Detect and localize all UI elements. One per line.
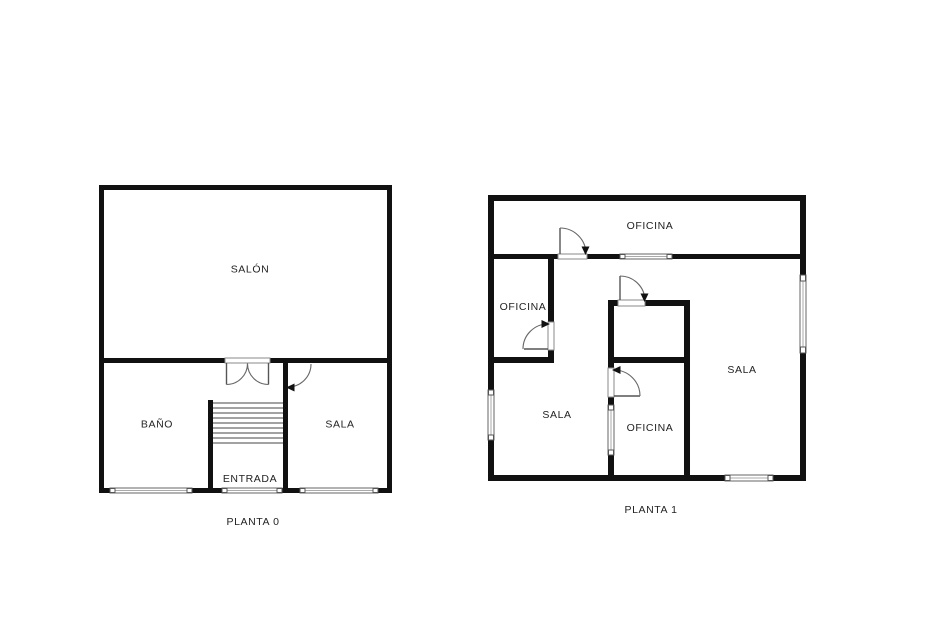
room-label-entrada: ENTRADA [223, 473, 277, 485]
double-door-symbol [225, 358, 270, 385]
door-swing-arc [288, 364, 311, 387]
stairs [213, 403, 283, 443]
room-label-salon: SALÓN [231, 263, 270, 276]
wall-left-upper [488, 195, 494, 390]
door-opening [225, 358, 270, 363]
wall-stair-left [208, 400, 213, 488]
wall-divider-right [270, 358, 392, 363]
door-swing-arc-left [227, 364, 248, 385]
window-cap [667, 255, 672, 259]
floorplan-canvas: SALÓN BAÑO SALA ENTRADA PLANTA 0 [0, 0, 937, 642]
door-swing-arc [614, 370, 640, 396]
wall-right-upper [800, 195, 806, 275]
door-swing-arc-right [248, 364, 269, 385]
door-swing-arc [620, 276, 645, 301]
wall-right [387, 185, 392, 493]
wall-segment [608, 357, 690, 363]
room-label-oficina-left: OFICINA [500, 301, 547, 313]
window-cap [373, 489, 378, 493]
wall-divider-left [99, 358, 225, 363]
room-label-oficina-middle: OFICINA [627, 422, 674, 434]
window-cap [110, 489, 115, 493]
door-top-corridor [558, 228, 590, 259]
window-cap [768, 476, 773, 481]
outer-walls [99, 185, 392, 493]
door-opening [608, 368, 614, 397]
window-bottom-wall [725, 475, 773, 481]
door-swing-arc [523, 324, 548, 349]
door-oficina-middle [608, 366, 640, 397]
wall-segment [608, 397, 614, 405]
wall-segment [608, 455, 614, 481]
door-opening [618, 300, 645, 306]
window-top-corridor [620, 254, 672, 259]
room-label-sala-left: SALA [542, 409, 571, 421]
center-room-walls [608, 300, 690, 481]
window-cap [725, 476, 730, 481]
interior-walls [208, 363, 288, 488]
room-label-bano: BAÑO [141, 418, 173, 431]
window-cap [620, 255, 625, 259]
room-label-oficina-top: OFICINA [627, 220, 674, 232]
plan-caption-planta0: PLANTA 0 [226, 516, 279, 528]
wall-top [99, 185, 392, 190]
window-cap [489, 435, 494, 440]
window-bano [110, 488, 192, 493]
window-cap [277, 489, 282, 493]
wall-segment [672, 254, 800, 259]
window-oficina-middle-wall [608, 405, 614, 455]
door-opening [548, 322, 554, 350]
wall-segment [608, 300, 614, 363]
wall-right-lower [800, 353, 806, 481]
floorplan-page: { "plans": { "planta0": { "caption": "PL… [0, 0, 937, 642]
window-cap [609, 450, 614, 455]
wall-segment [587, 254, 620, 259]
plan-caption-planta1: PLANTA 1 [624, 504, 677, 516]
wall-top [488, 195, 806, 201]
wall-segment [548, 259, 554, 322]
window-sala [300, 488, 378, 493]
wall-left [99, 185, 104, 493]
door-center-room [618, 276, 649, 306]
door-opening [558, 254, 587, 259]
wall-segment [645, 300, 690, 306]
window-right-wall [800, 275, 806, 353]
wall-stair-right [283, 363, 288, 488]
wall-segment [608, 363, 614, 368]
window-cap [187, 489, 192, 493]
window-left-wall [488, 390, 494, 440]
door-swing-arc [560, 228, 586, 254]
floorplan-planta0: SALÓN BAÑO SALA ENTRADA PLANTA 0 [99, 185, 392, 528]
room-label-sala: SALA [325, 419, 354, 431]
door-oficina-left [523, 320, 554, 350]
window-entrada [222, 488, 282, 493]
room-label-sala-right: SALA [727, 364, 756, 376]
outer-walls [488, 195, 806, 481]
window-cap [489, 390, 494, 395]
wall-segment [494, 357, 554, 363]
floorplan-planta1: OFICINA OFICINA SALA OFICINA SALA PLANTA… [488, 195, 806, 516]
wall-segment [684, 300, 690, 481]
window-cap [609, 405, 614, 410]
sala-door-symbol [286, 364, 311, 392]
window-cap [300, 489, 305, 493]
window-cap [801, 347, 806, 353]
window-cap [801, 275, 806, 281]
wall-segment [494, 254, 558, 259]
wall-left-lower [488, 440, 494, 481]
window-cap [222, 489, 227, 493]
